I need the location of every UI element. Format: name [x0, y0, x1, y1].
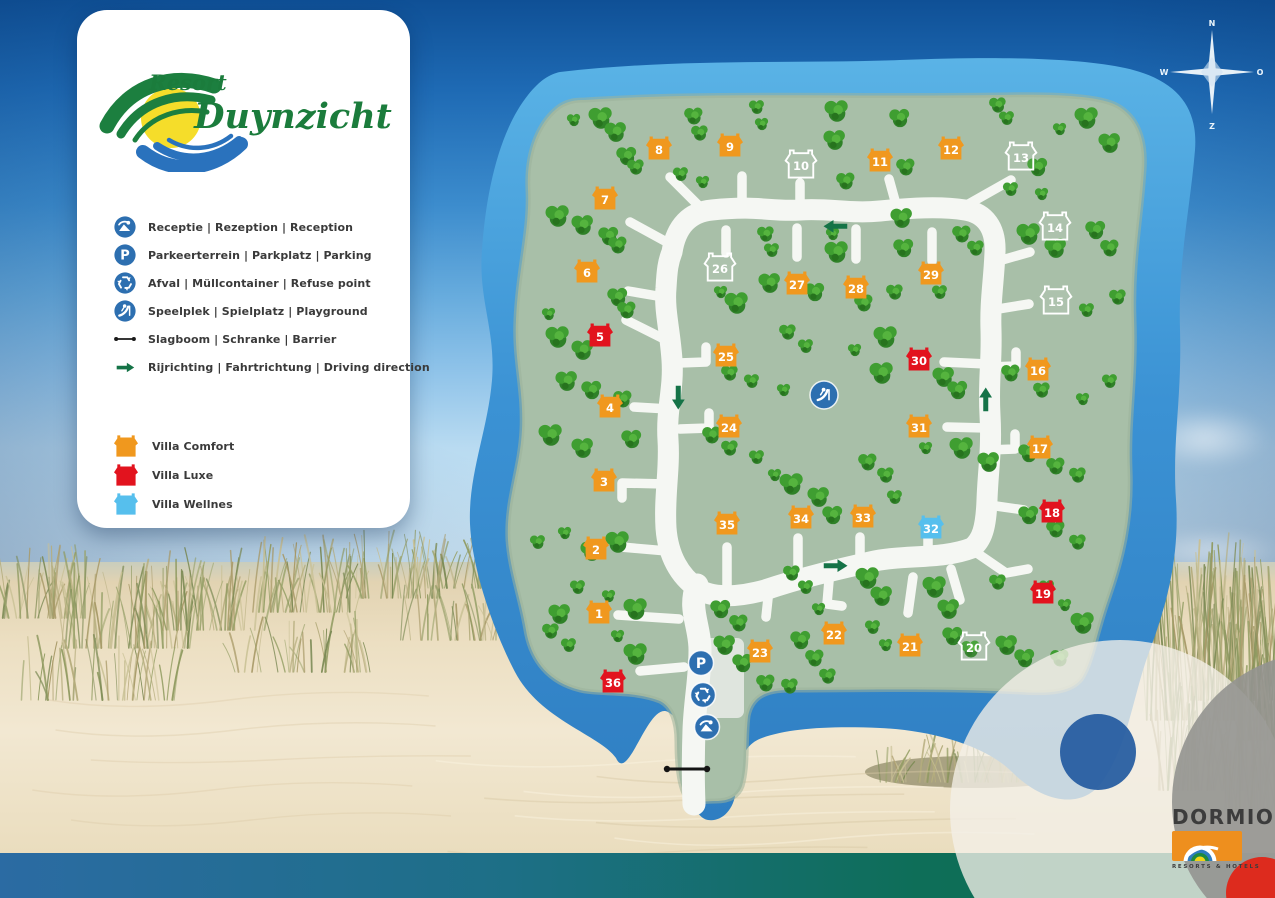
villa-marker-18[interactable]: 18: [1039, 500, 1065, 523]
villa-marker-15[interactable]: 15: [1041, 286, 1072, 313]
svg-text:32: 32: [923, 522, 939, 536]
svg-text:20: 20: [966, 641, 982, 655]
legend-item-villa-comfort: Villa Comfort: [113, 434, 402, 458]
legend-item-villa-luxe: Villa Luxe: [113, 463, 402, 487]
svg-text:26: 26: [712, 262, 728, 276]
villa-marker-1[interactable]: 1: [586, 601, 612, 624]
villa-marker-4[interactable]: 4: [597, 395, 623, 418]
svg-text:19: 19: [1035, 587, 1051, 601]
villa-marker-27[interactable]: 27: [784, 272, 810, 295]
legend-item-refuse: Afval | Müllcontainer | Refuse point: [113, 271, 402, 295]
logo-name-text: Duynzicht: [193, 96, 392, 137]
villa-marker-2[interactable]: 2: [583, 537, 609, 560]
svg-text:4: 4: [606, 401, 614, 415]
legend-label: Parkeerterrein | Parkplatz | Parking: [148, 249, 372, 262]
compass-north-label: N: [1209, 19, 1216, 28]
svg-text:21: 21: [902, 640, 918, 654]
villa-marker-6[interactable]: 6: [574, 260, 600, 283]
svg-text:36: 36: [605, 676, 621, 690]
svg-text:13: 13: [1013, 151, 1029, 165]
legend-label: Speelplek | Spielplatz | Playground: [148, 305, 368, 318]
driving-direction-icon: [113, 355, 137, 379]
svg-text:30: 30: [911, 354, 927, 368]
villa-marker-13[interactable]: 13: [1006, 142, 1037, 169]
svg-text:3: 3: [600, 475, 608, 489]
villa-marker-8[interactable]: 8: [646, 137, 672, 160]
svg-text:12: 12: [943, 143, 959, 157]
villa-marker-10[interactable]: 10: [786, 150, 817, 177]
map-playground-icon[interactable]: [810, 381, 838, 409]
svg-text:25: 25: [718, 350, 734, 364]
legend-item-parking: P Parkeerterrein | Parkplatz | Parking: [113, 243, 402, 267]
villa-marker-14[interactable]: 14: [1040, 212, 1071, 239]
svg-text:23: 23: [752, 646, 768, 660]
villa-marker-24[interactable]: 24: [716, 415, 742, 438]
reception-icon: [113, 215, 137, 239]
svg-text:29: 29: [923, 268, 939, 282]
svg-text:8: 8: [655, 143, 663, 157]
svg-text:P: P: [696, 656, 706, 672]
villa-marker-35[interactable]: 35: [714, 512, 740, 535]
villa-marker-16[interactable]: 16: [1025, 358, 1051, 381]
resort-map-page: P 12345678910111213141516171819202122232…: [0, 0, 1275, 898]
villa-marker-36[interactable]: 36: [600, 670, 626, 693]
legend-label: Villa Luxe: [152, 469, 213, 482]
villa-marker-3[interactable]: 3: [591, 469, 617, 492]
villa-marker-23[interactable]: 23: [747, 640, 773, 663]
svg-text:11: 11: [872, 155, 888, 169]
svg-text:6: 6: [583, 266, 591, 280]
legend-label: Slagboom | Schranke | Barrier: [148, 333, 336, 346]
map-refuse-icon[interactable]: [691, 683, 716, 708]
svg-text:14: 14: [1047, 221, 1063, 235]
svg-text:17: 17: [1032, 442, 1048, 456]
svg-text:9: 9: [726, 140, 734, 154]
svg-text:10: 10: [793, 159, 809, 173]
legend-item-playground: Speelplek | Spielplatz | Playground: [113, 299, 402, 323]
villa-marker-31[interactable]: 31: [906, 415, 932, 438]
svg-text:31: 31: [911, 421, 927, 435]
legend-item-reception: Receptie | Rezeption | Reception: [113, 215, 402, 239]
villa-comfort-swatch: [113, 434, 139, 458]
legend-item-villa-wellnes: Villa Wellnes: [113, 492, 402, 516]
legend-label: Villa Comfort: [152, 440, 234, 453]
resort-logo: Resort Duynzicht: [89, 54, 394, 172]
svg-text:34: 34: [793, 512, 809, 526]
legend-label: Villa Wellnes: [152, 498, 233, 511]
compass-rose: N Z W O: [1157, 17, 1267, 133]
svg-text:P: P: [120, 248, 129, 263]
legend-card: Resort Duynzicht Receptie | Rezeption | …: [77, 10, 410, 528]
legend-item-direction: Rijrichting | Fahrtrichtung | Driving di…: [113, 355, 402, 379]
dormio-logo-icon: [1172, 831, 1242, 861]
svg-text:28: 28: [848, 282, 864, 296]
villa-marker-30[interactable]: 30: [906, 348, 932, 371]
villa-marker-26[interactable]: 26: [705, 253, 736, 280]
villa-marker-29[interactable]: 29: [918, 262, 944, 285]
legend-label: Afval | Müllcontainer | Refuse point: [148, 277, 371, 290]
legend-label: Receptie | Rezeption | Reception: [148, 221, 353, 234]
svg-text:35: 35: [719, 518, 735, 532]
legend-label: Rijrichting | Fahrtrichtung | Driving di…: [148, 361, 430, 374]
villa-marker-34[interactable]: 34: [788, 506, 814, 529]
compass-west-label: W: [1160, 68, 1169, 77]
compass-east-label: O: [1257, 68, 1264, 77]
svg-text:33: 33: [855, 511, 871, 525]
villa-marker-17[interactable]: 17: [1027, 436, 1053, 459]
villa-marker-32[interactable]: 32: [918, 516, 944, 539]
dormio-brand-text: DORMIO: [1172, 806, 1254, 828]
decorative-circle-blue: [1060, 714, 1136, 790]
villa-marker-33[interactable]: 33: [850, 505, 876, 528]
svg-text:24: 24: [721, 421, 737, 435]
svg-text:22: 22: [826, 628, 842, 642]
villa-marker-19[interactable]: 19: [1030, 581, 1056, 604]
villa-marker-21[interactable]: 21: [897, 634, 923, 657]
svg-text:16: 16: [1030, 364, 1046, 378]
map-reception-icon[interactable]: [695, 715, 720, 740]
villa-wellnes-swatch: [113, 492, 139, 516]
map-parking-icon[interactable]: P: [689, 651, 714, 676]
legend-item-barrier: Slagboom | Schranke | Barrier: [113, 327, 402, 351]
svg-text:2: 2: [592, 543, 600, 557]
logo-resort-text: Resort: [148, 70, 227, 95]
svg-text:27: 27: [789, 278, 805, 292]
svg-text:15: 15: [1048, 295, 1064, 309]
svg-text:5: 5: [596, 330, 604, 344]
villa-marker-25[interactable]: 25: [713, 344, 739, 367]
villa-marker-20[interactable]: 20: [959, 632, 990, 659]
svg-text:7: 7: [601, 193, 609, 207]
villa-marker-7[interactable]: 7: [592, 187, 618, 210]
villa-marker-5[interactable]: 5: [587, 324, 613, 347]
villa-marker-28[interactable]: 28: [843, 276, 869, 299]
dormio-tagline: RESORTS & HOTELS: [1172, 864, 1254, 870]
compass-south-label: Z: [1209, 122, 1215, 131]
refuse-point-icon: [113, 271, 137, 295]
villa-marker-9[interactable]: 9: [717, 134, 743, 157]
svg-text:1: 1: [595, 607, 603, 621]
parking-icon: P: [113, 243, 137, 267]
villa-marker-12[interactable]: 12: [938, 137, 964, 160]
svg-text:18: 18: [1044, 506, 1060, 520]
villa-marker-11[interactable]: 11: [867, 149, 893, 172]
dormio-logo: DORMIO RESORTS & HOTELS: [1172, 806, 1254, 870]
barrier-icon: [113, 327, 137, 351]
villa-luxe-swatch: [113, 463, 139, 487]
villa-marker-22[interactable]: 22: [821, 622, 847, 645]
playground-icon: [113, 299, 137, 323]
